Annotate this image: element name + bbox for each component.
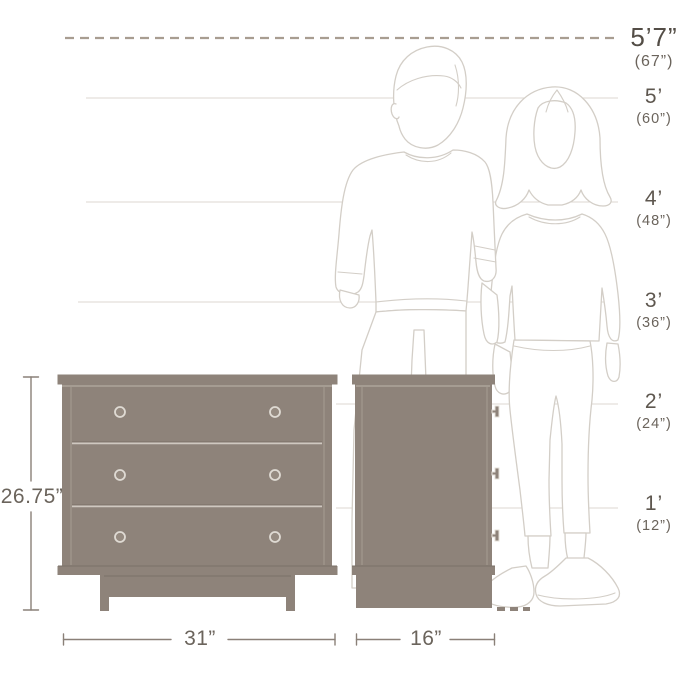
- front-bottom-strip: [58, 566, 338, 575]
- height-marker-5ft7: 5’7” (67”): [610, 22, 698, 72]
- woman-left-ankle: [528, 536, 550, 568]
- knob: [270, 407, 280, 417]
- figure-woman: [484, 87, 621, 607]
- marker-inches-label: (60”): [610, 110, 698, 129]
- marker-feet-label: 3’: [610, 288, 698, 314]
- woman-right-ankle: [565, 533, 586, 560]
- side-knob-profiles: [492, 406, 499, 541]
- woman-face: [534, 101, 575, 169]
- front-leg-right: [286, 575, 295, 611]
- marker-inches-label: (36”): [610, 314, 698, 333]
- front-leg-left: [100, 575, 109, 611]
- man-sweater: [335, 150, 496, 312]
- marker-feet-label: 4’: [610, 186, 698, 212]
- dresser-width-label: 31”: [170, 627, 230, 651]
- diagram-canvas: [0, 0, 700, 700]
- woman-pants: [509, 340, 593, 536]
- marker-inches-label: (24”): [610, 415, 698, 434]
- dresser-front-view: [58, 375, 338, 612]
- knob: [115, 532, 125, 542]
- marker-feet-label: 1’: [610, 491, 698, 517]
- knob: [270, 532, 280, 542]
- side-bottom-strip: [352, 566, 495, 575]
- side-knob: [492, 406, 499, 417]
- marker-inches-label: (48”): [610, 212, 698, 231]
- height-marker-3ft: 3’ (36”): [610, 288, 698, 333]
- dresser-depth-label: 16”: [396, 627, 456, 651]
- knob: [270, 470, 280, 480]
- marker-inches-label: (67”): [610, 52, 698, 72]
- front-base-panel: [104, 575, 291, 597]
- knob: [115, 470, 125, 480]
- man-head: [394, 46, 467, 148]
- marker-feet-label: 5’7”: [610, 22, 698, 52]
- marker-feet-label: 2’: [610, 389, 698, 415]
- front-tabletop: [58, 375, 338, 385]
- marker-feet-label: 5’: [610, 84, 698, 110]
- height-marker-2ft: 2’ (24”): [610, 389, 698, 434]
- knob: [115, 407, 125, 417]
- height-marker-4ft: 4’ (48”): [610, 186, 698, 231]
- side-tabletop: [352, 375, 495, 385]
- dresser-height-label: 26.75”: [0, 485, 67, 509]
- side-base: [356, 575, 492, 608]
- height-marker-1ft: 1’ (12”): [610, 491, 698, 536]
- woman-sweater: [490, 214, 620, 343]
- woman-right-hand: [606, 343, 620, 381]
- size-diagram: 5’7” (67”) 5’ (60”) 4’ (48”) 3’ (36”) 2’…: [0, 0, 700, 700]
- woman-left-hand: [493, 344, 512, 394]
- side-knob: [492, 468, 499, 479]
- dresser-side-view: [352, 375, 499, 609]
- front-body: [62, 384, 332, 566]
- height-marker-5ft: 5’ (60”): [610, 84, 698, 129]
- side-knob: [492, 530, 499, 541]
- marker-inches-label: (12”): [610, 517, 698, 536]
- side-body: [355, 384, 492, 566]
